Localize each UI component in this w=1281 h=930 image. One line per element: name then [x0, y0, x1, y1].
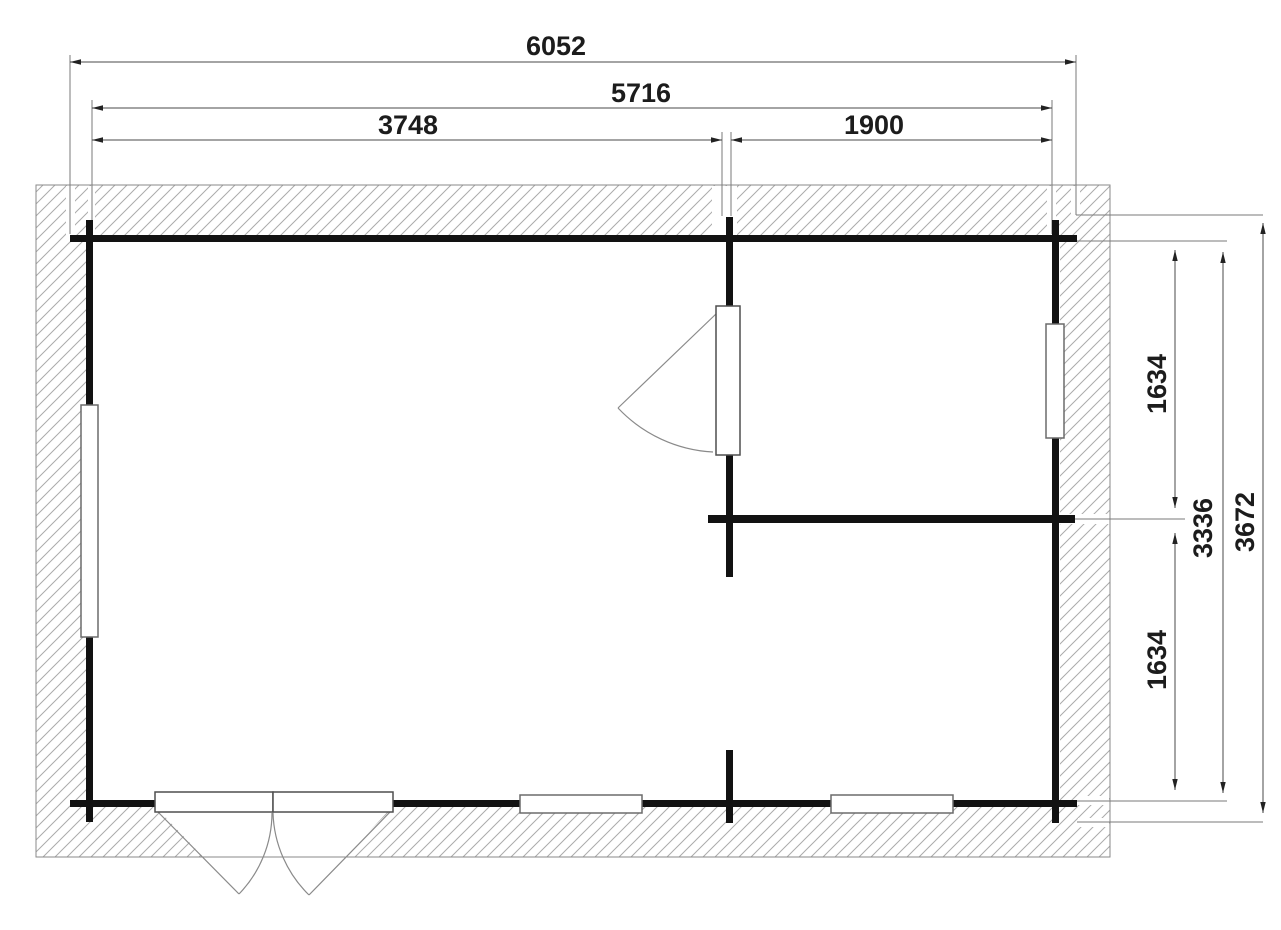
interior-door-swing-line: [618, 313, 717, 408]
dim-label-lower-right-room-depth: 1634: [1142, 630, 1172, 690]
extension-slot: [712, 186, 737, 235]
partition-wall-vertical: [726, 750, 733, 823]
floor-plan-canvas: 6052 5716 3748 1900 1634 3336 3672 1634: [0, 0, 1281, 930]
double-door-right-leaf: [273, 792, 393, 812]
dim-label-right-room-width: 1900: [844, 110, 904, 140]
interior-door: [618, 306, 740, 455]
exterior-wall-bottom: [393, 800, 520, 807]
interior-door-swing-arc: [618, 408, 713, 452]
hatched-border-band: [36, 185, 1110, 896]
dim-label-overall-depth: 3672: [1230, 492, 1260, 552]
double-door-left-leaf: [155, 792, 273, 812]
dim-label-upper-right-room-depth: 1634: [1142, 354, 1172, 414]
exterior-wall-bottom: [642, 800, 831, 807]
windows: [81, 324, 1064, 813]
exterior-wall-bottom: [70, 800, 155, 807]
dim-label-right-rooms-span: 3336: [1188, 498, 1218, 558]
partition-wall-horizontal: [708, 515, 1075, 523]
window-bottom-right: [831, 795, 953, 813]
window-right-wall: [1046, 324, 1064, 438]
exterior-wall-left: [86, 220, 93, 405]
dimension-labels: 6052 5716 3748 1900 1634 3336 3672 1634: [378, 31, 1260, 690]
window-bottom-left: [520, 795, 642, 813]
walls: [70, 217, 1077, 823]
interior-door-leaf: [716, 306, 740, 455]
dim-label-wall-outer-width: 5716: [611, 78, 671, 108]
window-left-wall: [81, 405, 98, 637]
dim-label-left-room-width: 3748: [378, 110, 438, 140]
exterior-wall-right: [1052, 438, 1059, 823]
exterior-wall-left: [86, 637, 93, 822]
exterior-wall-right: [1052, 220, 1059, 324]
partition-wall-vertical: [726, 217, 733, 307]
exterior-wall-top: [70, 235, 1077, 242]
floor-plan-page: 6052 5716 3748 1900 1634 3336 3672 1634: [0, 0, 1281, 930]
dim-label-overall-width: 6052: [526, 31, 586, 61]
